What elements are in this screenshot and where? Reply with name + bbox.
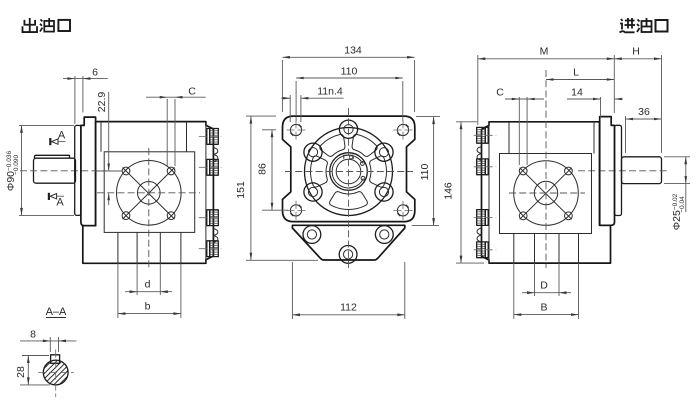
svg-text:A: A bbox=[58, 130, 66, 142]
svg-text:A: A bbox=[56, 197, 64, 209]
svg-text:M: M bbox=[540, 46, 549, 58]
svg-text:H: H bbox=[632, 46, 640, 58]
svg-text:110: 110 bbox=[341, 66, 358, 78]
svg-text:134: 134 bbox=[344, 45, 362, 57]
svg-text:8: 8 bbox=[30, 329, 36, 341]
svg-text:28: 28 bbox=[15, 366, 27, 378]
svg-text:22.9: 22.9 bbox=[96, 92, 108, 113]
svg-text:L: L bbox=[573, 67, 579, 79]
svg-text:B: B bbox=[540, 302, 547, 314]
svg-text:A–A: A–A bbox=[46, 306, 67, 318]
svg-text:110: 110 bbox=[419, 163, 431, 180]
svg-text:d: d bbox=[145, 279, 151, 291]
svg-text:6: 6 bbox=[92, 67, 98, 79]
svg-text:11n.4: 11n.4 bbox=[317, 86, 343, 98]
svg-text:C: C bbox=[496, 87, 504, 99]
svg-text:D: D bbox=[540, 280, 548, 292]
svg-text:b: b bbox=[145, 301, 151, 313]
svg-text:86: 86 bbox=[257, 163, 269, 175]
svg-text:112: 112 bbox=[340, 302, 357, 314]
svg-text:14: 14 bbox=[571, 87, 583, 99]
svg-text:C: C bbox=[188, 86, 196, 98]
svg-text:151: 151 bbox=[235, 181, 247, 199]
svg-text:146: 146 bbox=[443, 182, 455, 200]
svg-text:36: 36 bbox=[638, 106, 650, 118]
